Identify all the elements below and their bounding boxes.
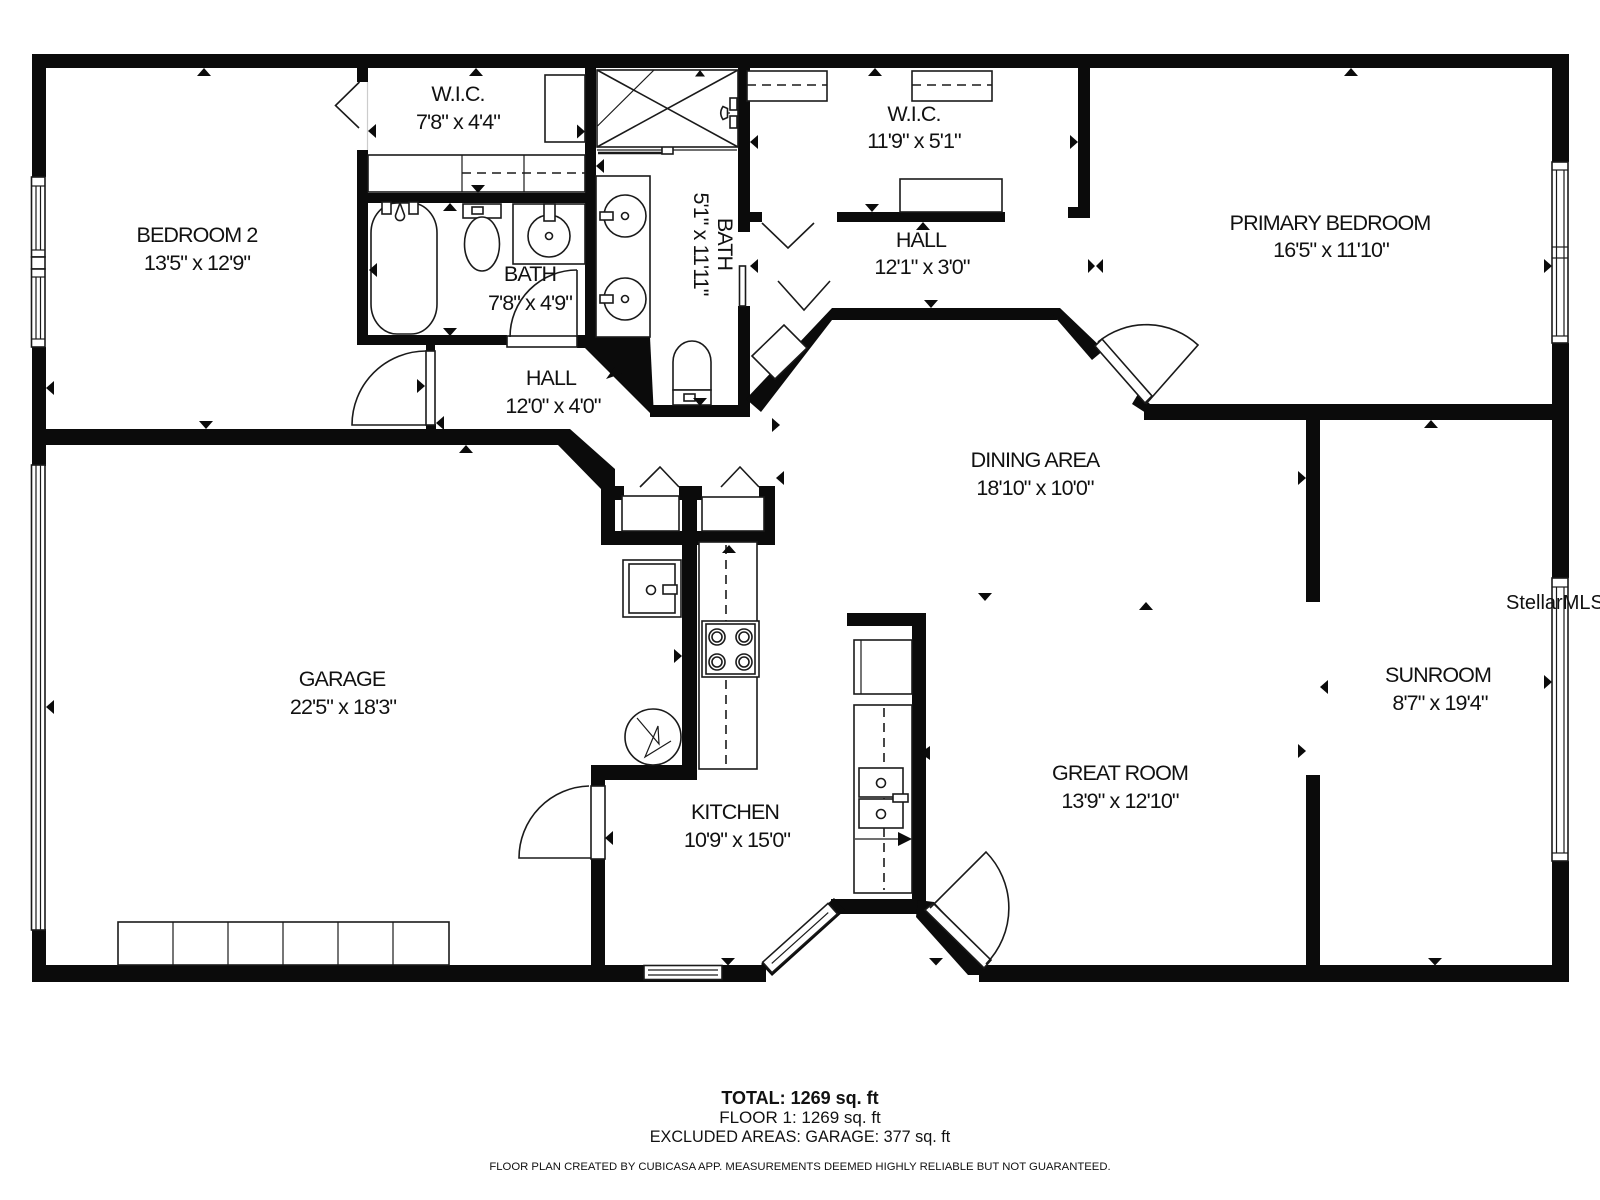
svg-text:13'5" x 12'9": 13'5" x 12'9" xyxy=(144,251,250,275)
svg-text:GARAGE: GARAGE xyxy=(299,667,386,691)
svg-text:SUNROOM: SUNROOM xyxy=(1385,663,1491,687)
svg-text:BATH: BATH xyxy=(504,262,556,286)
svg-text:HALL: HALL xyxy=(526,366,577,390)
svg-text:22'5" x 18'3": 22'5" x 18'3" xyxy=(290,695,396,719)
svg-text:18'10" x 10'0": 18'10" x 10'0" xyxy=(976,476,1094,500)
svg-text:EXCLUDED AREAS: GARAGE: 377 sq: EXCLUDED AREAS: GARAGE: 377 sq. ft xyxy=(650,1128,951,1146)
svg-text:13'9" x 12'10": 13'9" x 12'10" xyxy=(1061,789,1179,813)
svg-text:PRIMARY BEDROOM: PRIMARY BEDROOM xyxy=(1230,211,1431,235)
svg-text:HALL: HALL xyxy=(896,228,947,252)
svg-text:8'7" x 19'4": 8'7" x 19'4" xyxy=(1392,691,1487,715)
svg-text:16'5" x 11'10": 16'5" x 11'10" xyxy=(1273,238,1389,262)
svg-text:BATH: BATH xyxy=(713,218,737,270)
svg-text:TOTAL: 1269 sq. ft: TOTAL: 1269 sq. ft xyxy=(721,1088,878,1108)
svg-text:BEDROOM 2: BEDROOM 2 xyxy=(137,223,258,247)
svg-text:7'8" x 4'9": 7'8" x 4'9" xyxy=(488,291,572,315)
svg-text:GREAT ROOM: GREAT ROOM xyxy=(1052,761,1188,785)
svg-text:FLOOR PLAN CREATED BY CUBICASA: FLOOR PLAN CREATED BY CUBICASA APP. MEAS… xyxy=(489,1161,1110,1173)
svg-text:StellarMLS: StellarMLS xyxy=(1506,592,1600,614)
svg-text:KITCHEN: KITCHEN xyxy=(691,800,779,824)
svg-text:FLOOR 1: 1269 sq. ft: FLOOR 1: 1269 sq. ft xyxy=(719,1108,881,1127)
svg-text:10'9" x 15'0": 10'9" x 15'0" xyxy=(684,828,790,852)
svg-text:DINING AREA: DINING AREA xyxy=(971,448,1101,472)
svg-text:11'9" x 5'1": 11'9" x 5'1" xyxy=(867,129,961,153)
svg-text:7'8" x 4'4": 7'8" x 4'4" xyxy=(416,110,500,134)
svg-text:W.I.C.: W.I.C. xyxy=(887,102,940,126)
svg-text:W.I.C.: W.I.C. xyxy=(431,82,484,106)
svg-text:12'1" x 3'0": 12'1" x 3'0" xyxy=(874,255,969,279)
svg-text:12'0" x 4'0": 12'0" x 4'0" xyxy=(505,394,600,418)
svg-text:5'1" x 11'11": 5'1" x 11'11" xyxy=(689,192,713,295)
